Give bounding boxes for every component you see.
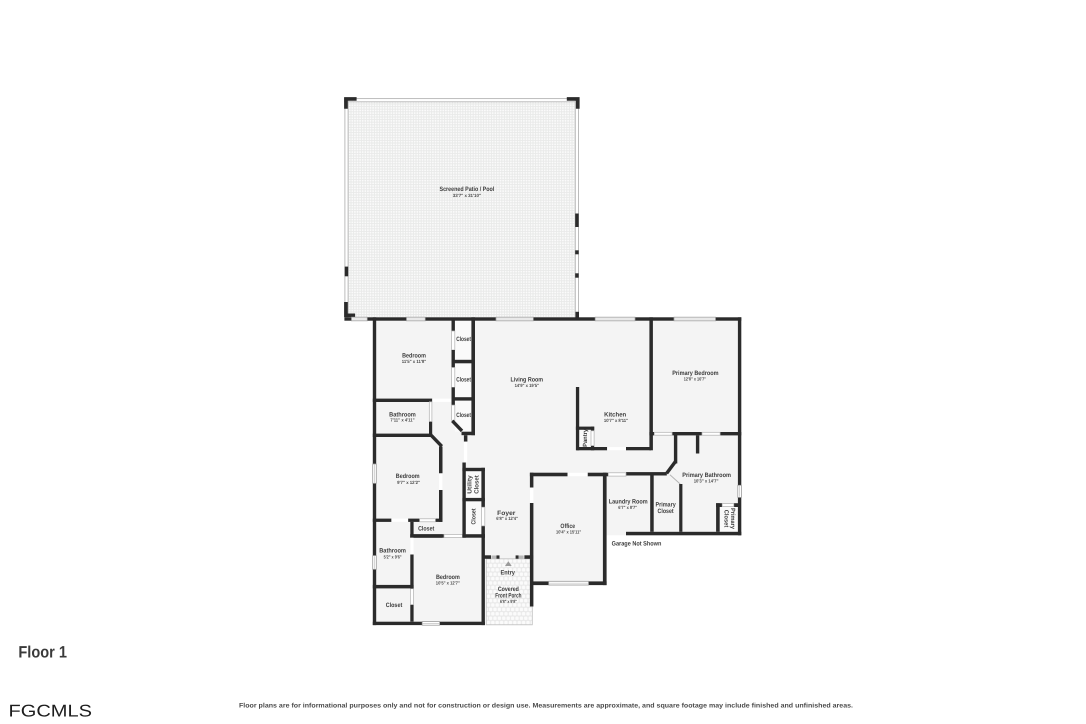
svg-text:Closet: Closet bbox=[418, 526, 435, 533]
svg-text:Closet: Closet bbox=[456, 376, 471, 383]
svg-text:6'8" x 9'8": 6'8" x 9'8" bbox=[500, 599, 517, 604]
svg-text:Screened Patio / Pool: Screened Patio / Pool bbox=[440, 186, 495, 193]
svg-text:Closet: Closet bbox=[658, 508, 675, 515]
svg-text:10'4" x 15'11": 10'4" x 15'11" bbox=[556, 529, 581, 534]
svg-text:FGCMLS: FGCMLS bbox=[9, 702, 92, 721]
svg-text:Closet: Closet bbox=[456, 336, 471, 343]
svg-text:Closet: Closet bbox=[723, 510, 730, 528]
svg-text:Closet: Closet bbox=[471, 508, 478, 524]
svg-text:Garage Not Shown: Garage Not Shown bbox=[612, 540, 662, 547]
svg-text:Closet: Closet bbox=[386, 602, 403, 609]
svg-text:6'8" x 12'4": 6'8" x 12'4" bbox=[496, 516, 518, 521]
svg-text:Entry: Entry bbox=[501, 569, 516, 576]
svg-text:9'7" x 12'2": 9'7" x 12'2" bbox=[397, 480, 420, 485]
svg-text:Pantry: Pantry bbox=[582, 428, 589, 447]
svg-text:33'7" x 31'10": 33'7" x 31'10" bbox=[453, 193, 481, 198]
svg-text:Floor 1: Floor 1 bbox=[18, 644, 67, 662]
svg-text:7'11" x 4'11": 7'11" x 4'11" bbox=[390, 417, 414, 422]
svg-text:14'9" x 19'5": 14'9" x 19'5" bbox=[515, 383, 539, 388]
svg-text:6'7" x 8'7": 6'7" x 8'7" bbox=[618, 505, 637, 510]
svg-text:12'8" x 16'7": 12'8" x 16'7" bbox=[684, 377, 706, 382]
svg-text:Floor plans are for informatio: Floor plans are for informational purpos… bbox=[239, 703, 853, 710]
svg-text:10'3" x 14'7": 10'3" x 14'7" bbox=[694, 479, 719, 484]
svg-text:11'5" x 11'8": 11'5" x 11'8" bbox=[402, 359, 427, 364]
svg-text:5'2" x 9'6": 5'2" x 9'6" bbox=[384, 555, 402, 560]
svg-text:Closet: Closet bbox=[473, 475, 480, 494]
svg-text:10'5" x 12'7": 10'5" x 12'7" bbox=[436, 580, 460, 585]
svg-text:Closet: Closet bbox=[456, 412, 471, 419]
svg-text:10'7" x 8'11": 10'7" x 8'11" bbox=[604, 418, 628, 423]
